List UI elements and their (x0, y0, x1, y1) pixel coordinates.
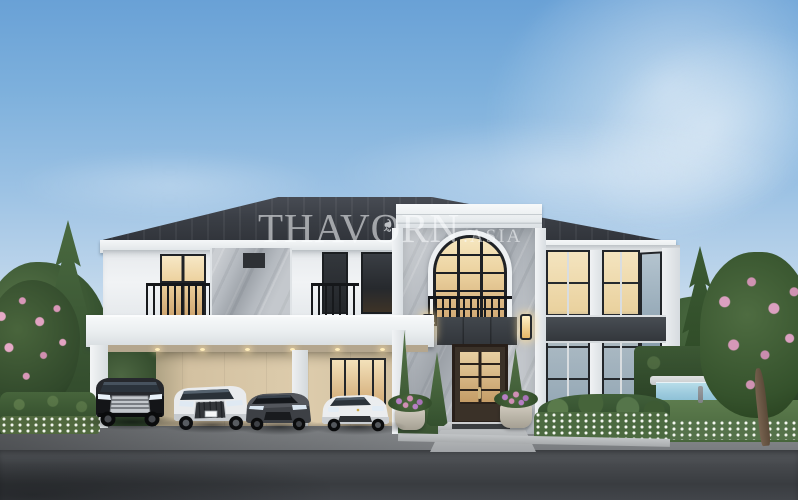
purple-flowers-right (494, 390, 538, 408)
floor-spandrel-band (544, 315, 666, 343)
car-grey-sedan (240, 382, 318, 430)
marble-pier-niche (243, 253, 265, 268)
entry-header-panel (437, 317, 517, 345)
ceiling-downlight (245, 348, 250, 351)
ceiling-downlight (200, 348, 205, 351)
road-shadow (0, 450, 330, 500)
tower-entablature (396, 204, 542, 230)
door-mat (452, 424, 510, 429)
upper-window-3 (361, 252, 395, 314)
pink-blossom-tree-right (700, 252, 798, 418)
car-black-van (88, 366, 172, 428)
car-white-sports-sedan (316, 383, 400, 430)
ceiling-downlight (335, 348, 340, 351)
garden-bollard-light-2 (698, 386, 703, 403)
door-handle (478, 387, 481, 399)
canopy-underside (96, 345, 428, 352)
carport-canopy (86, 315, 434, 347)
ceiling-downlight (155, 348, 160, 351)
architectural-rendering: THAVORN ❧ .ASIA (0, 0, 798, 500)
wall-sconce-right (520, 314, 532, 340)
ceiling-downlight (380, 348, 385, 351)
